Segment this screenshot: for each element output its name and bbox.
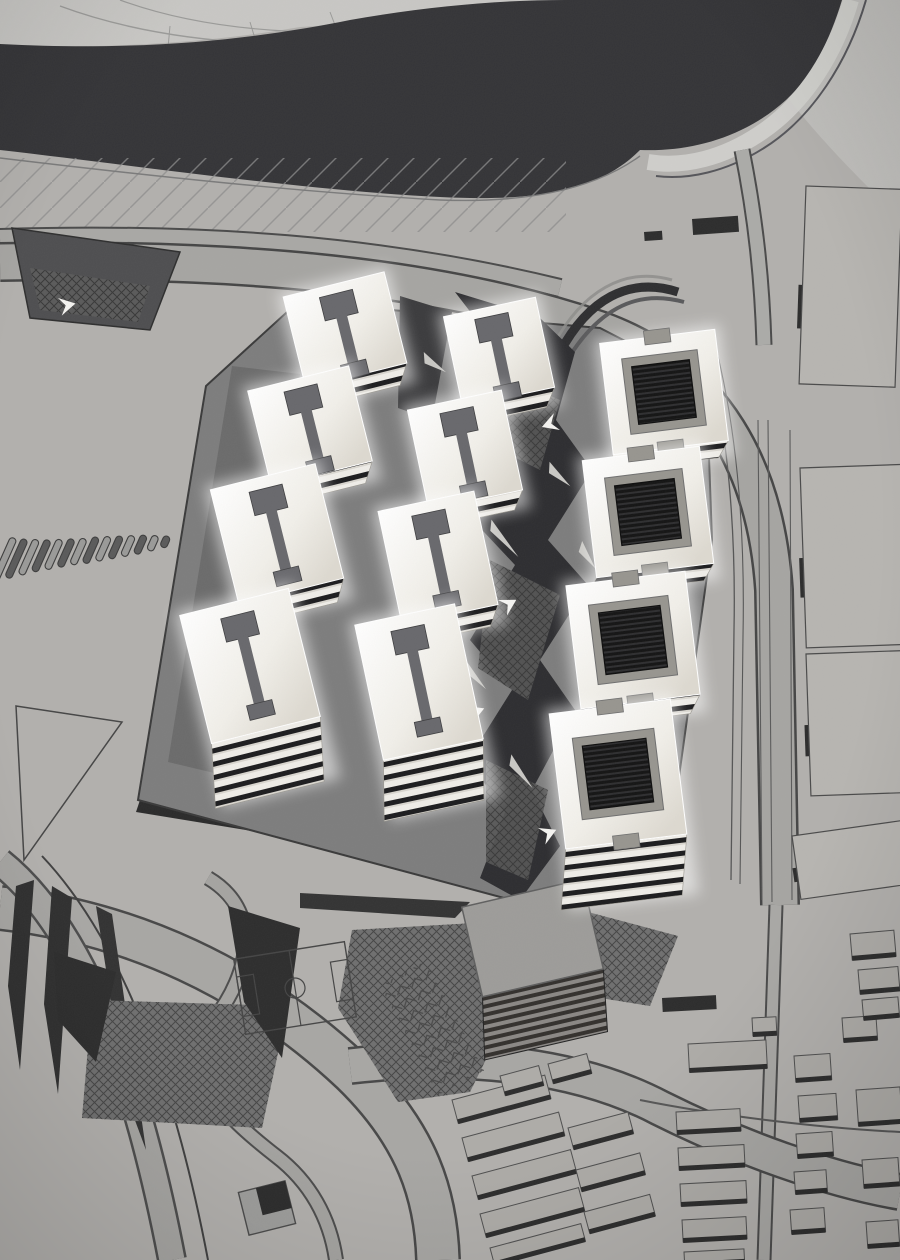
model-photograph bbox=[0, 0, 900, 1260]
vignette bbox=[0, 0, 900, 1260]
scene-svg bbox=[0, 0, 900, 1260]
